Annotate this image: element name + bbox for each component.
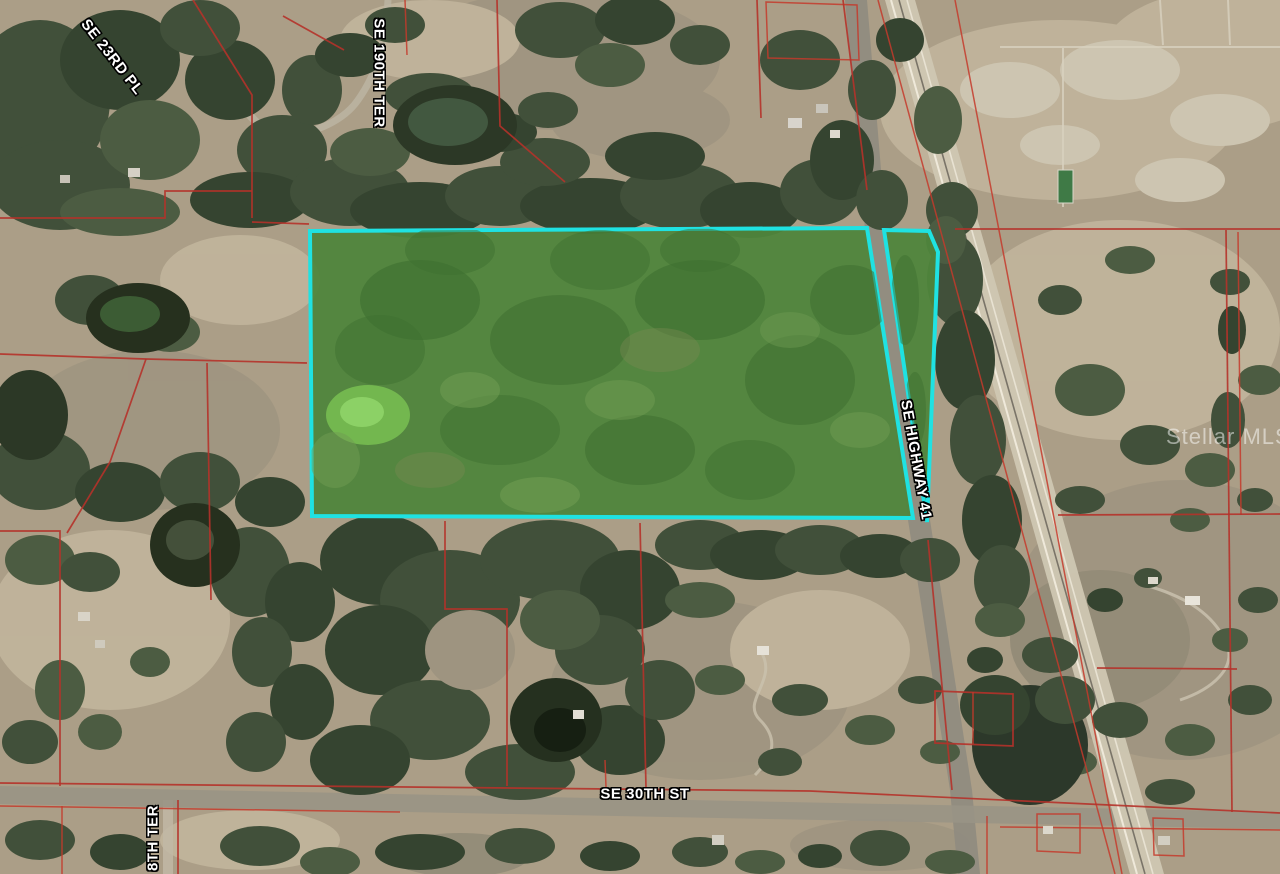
green-roof-building (1058, 170, 1073, 203)
aerial-map-canvas[interactable]: SE 23RD PL SE 190TH TER SE HIGHWAY 41 SE… (0, 0, 1280, 874)
highlighted-parcels[interactable] (310, 225, 938, 522)
